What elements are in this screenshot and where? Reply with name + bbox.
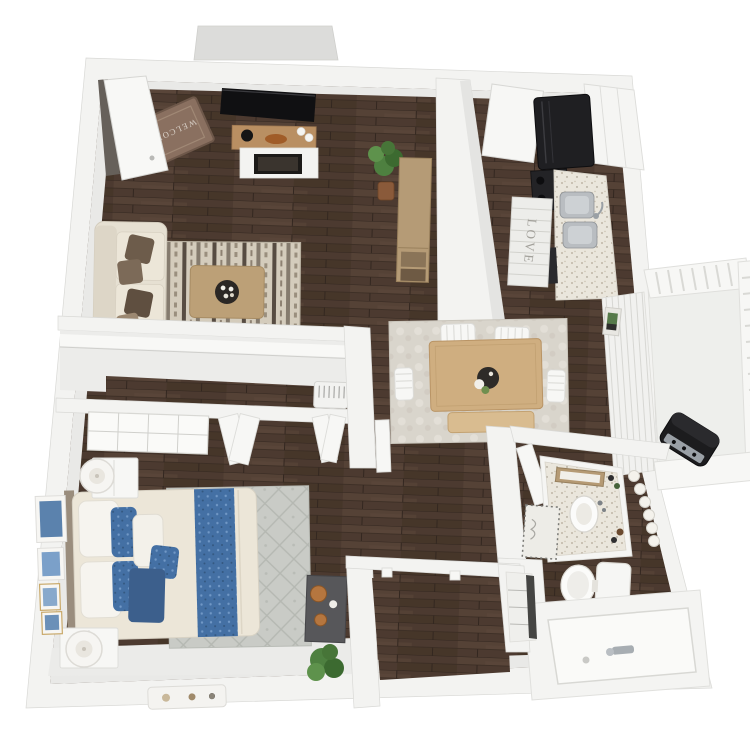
sink-basin — [565, 196, 589, 214]
bar-console — [396, 158, 431, 283]
bed — [64, 486, 260, 643]
bath-mat — [522, 505, 560, 559]
lamp-finial — [95, 474, 99, 478]
toiletry — [608, 475, 614, 481]
bed-runner — [194, 488, 238, 637]
floating-shelf — [232, 125, 316, 150]
wall-art-content — [606, 323, 617, 330]
fireplace-console — [240, 148, 318, 178]
wood-bowl — [310, 585, 327, 602]
toilet-hinge — [592, 580, 599, 592]
dining-chair — [394, 368, 413, 401]
nightstand — [60, 628, 118, 668]
throw-pillow — [117, 259, 144, 286]
dining-chair — [546, 370, 565, 403]
vanity-faucet — [598, 501, 603, 506]
bathtub — [524, 590, 710, 700]
shelf-candle — [305, 134, 313, 142]
tub-faucet-knob — [606, 648, 614, 656]
art-content — [43, 588, 58, 606]
wall-art-small — [603, 307, 622, 336]
accent-console — [305, 575, 347, 642]
dining-table — [429, 339, 543, 412]
art-content — [39, 501, 62, 538]
shelf-candle — [297, 127, 305, 135]
art-content — [45, 615, 60, 630]
storage-crate — [400, 269, 425, 282]
toiletry — [617, 529, 624, 536]
art-content — [42, 552, 61, 577]
toiletry — [611, 537, 617, 543]
toiletry — [614, 483, 620, 489]
fireplace-inner — [258, 157, 298, 171]
walk-in-floor — [372, 578, 510, 680]
throw-pillow — [123, 288, 153, 318]
floor-tray — [148, 685, 227, 710]
pantry-door — [482, 84, 544, 163]
coffee-table — [190, 265, 265, 318]
door-handle — [150, 156, 155, 161]
floor-plan-render: WELCOME — [0, 0, 750, 750]
vanity-faucet — [602, 508, 606, 512]
roof-bump — [194, 26, 338, 60]
water-heater — [314, 381, 349, 408]
closet-door-frame — [382, 568, 392, 577]
mirrored-closet-door — [87, 412, 208, 454]
hall-door — [375, 420, 391, 472]
bed-throw — [128, 568, 165, 623]
storage-crate — [401, 252, 426, 268]
dining-area — [389, 318, 569, 443]
floor-plan-canvas: WELCOME — [0, 0, 750, 750]
sink-bowl — [576, 503, 592, 525]
kitchen-runner-rug: LOVE — [508, 197, 553, 287]
sink-basin — [568, 226, 592, 244]
tub-basin — [548, 608, 696, 684]
tub-drain — [583, 657, 590, 664]
closet-door-frame — [450, 571, 460, 580]
lamp-finial — [82, 647, 86, 651]
refrigerator — [534, 94, 595, 170]
wood-bowl — [314, 614, 326, 626]
